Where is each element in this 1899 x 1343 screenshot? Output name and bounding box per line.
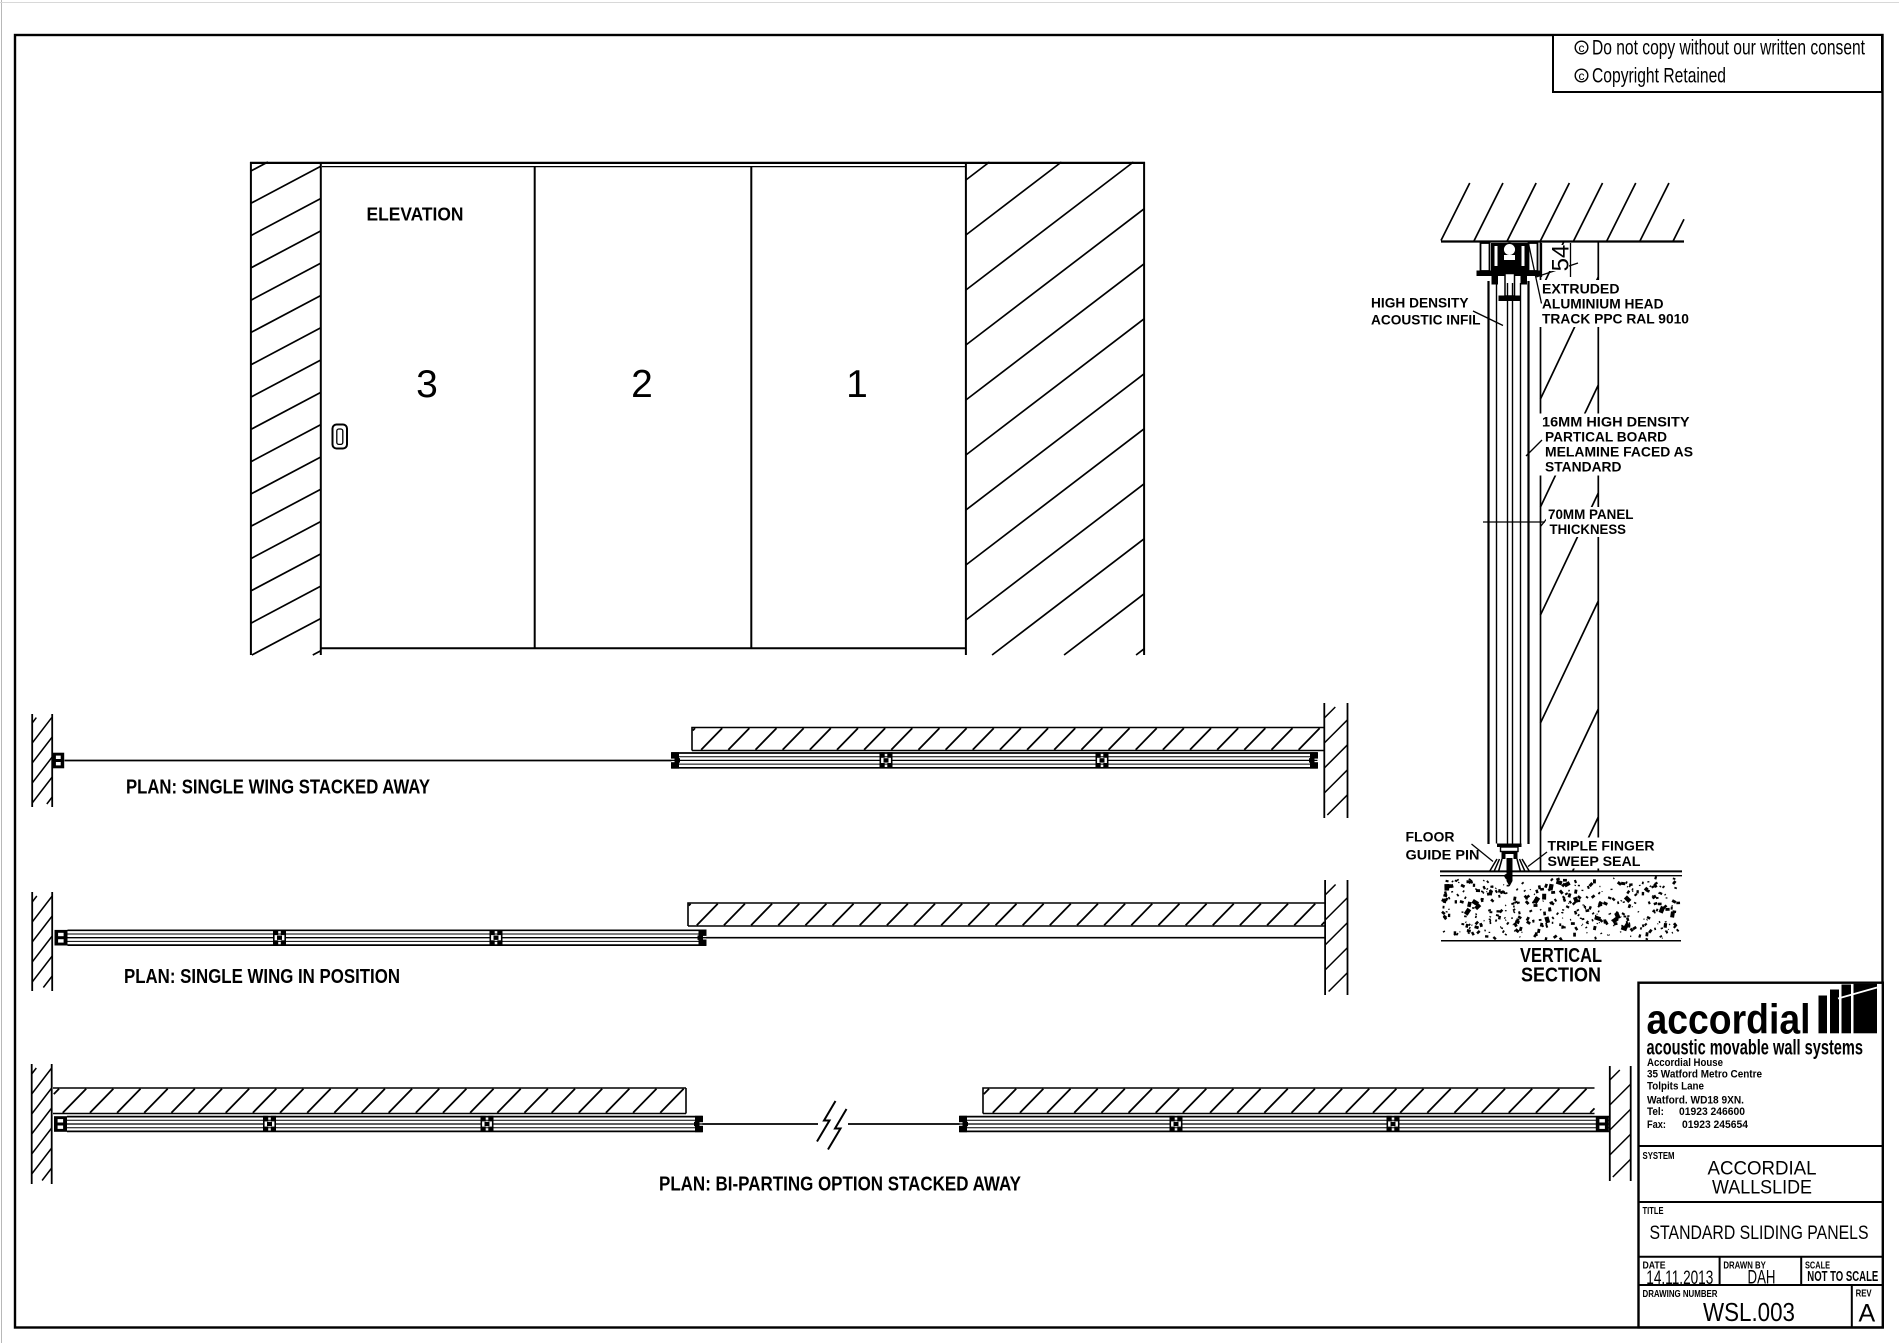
- svg-text:DAH: DAH: [1748, 1268, 1776, 1289]
- svg-text:01923 246600: 01923 246600: [1679, 1106, 1745, 1118]
- svg-text:Watford. WD18 9XN.: Watford. WD18 9XN.: [1647, 1095, 1744, 1107]
- svg-text:SWEEP SEAL: SWEEP SEAL: [1548, 853, 1641, 869]
- svg-text:ELEVATION: ELEVATION: [367, 204, 464, 225]
- svg-text:THICKNESS: THICKNESS: [1550, 521, 1627, 537]
- svg-text:PLAN: SINGLE WING IN POSITION: PLAN: SINGLE WING IN POSITION: [124, 966, 400, 988]
- svg-text:PLAN: BI-PARTING OPTION STACKE: PLAN: BI-PARTING OPTION STACKED AWAY: [659, 1174, 1022, 1196]
- svg-text:54: 54: [1548, 245, 1575, 272]
- svg-text:3: 3: [416, 363, 438, 406]
- svg-text:01923 245654: 01923 245654: [1682, 1119, 1749, 1131]
- svg-text:PARTICAL BOARD: PARTICAL BOARD: [1545, 429, 1667, 445]
- svg-text:ACOUSTIC INFIL: ACOUSTIC INFIL: [1371, 312, 1481, 328]
- svg-text:STANDARD SLIDING PANELS: STANDARD SLIDING PANELS: [1650, 1222, 1869, 1244]
- svg-text:NOT TO SCALE: NOT TO SCALE: [1807, 1269, 1878, 1285]
- svg-text:1: 1: [846, 363, 868, 406]
- svg-text:c: c: [1579, 69, 1585, 83]
- svg-text:35 Watford Metro Centre: 35 Watford Metro Centre: [1647, 1069, 1762, 1081]
- svg-text:Copyright Retained: Copyright Retained: [1592, 65, 1726, 88]
- svg-text:TRACK PPC RAL 9010: TRACK PPC RAL 9010: [1542, 311, 1689, 327]
- svg-text:A: A: [1859, 1300, 1876, 1328]
- svg-text:TITLE: TITLE: [1643, 1206, 1664, 1217]
- svg-text:WSL.003: WSL.003: [1703, 1299, 1795, 1327]
- svg-text:ALUMINIUM HEAD: ALUMINIUM HEAD: [1542, 296, 1664, 312]
- svg-text:REV: REV: [1856, 1289, 1872, 1300]
- svg-text:HIGH DENSITY: HIGH DENSITY: [1371, 295, 1469, 311]
- svg-text:MELAMINE FACED AS: MELAMINE FACED AS: [1545, 444, 1693, 460]
- svg-text:Do not copy without our writte: Do not copy without our written consent: [1592, 37, 1865, 60]
- svg-text:Tolpits Lane: Tolpits Lane: [1647, 1081, 1704, 1093]
- svg-text:16MM HIGH DENSITY: 16MM HIGH DENSITY: [1542, 414, 1690, 430]
- svg-text:Accordial House: Accordial House: [1647, 1057, 1723, 1069]
- svg-text:SECTION: SECTION: [1521, 965, 1601, 987]
- svg-text:2: 2: [631, 363, 653, 406]
- svg-text:STANDARD: STANDARD: [1545, 459, 1622, 475]
- svg-text:Fax:: Fax:: [1647, 1119, 1666, 1131]
- svg-text:70MM PANEL: 70MM PANEL: [1548, 506, 1634, 522]
- svg-text:FLOOR: FLOOR: [1406, 829, 1455, 845]
- svg-text:GUIDE PIN: GUIDE PIN: [1406, 847, 1480, 863]
- svg-text:c: c: [1579, 41, 1585, 55]
- svg-text:TRIPLE FINGER: TRIPLE FINGER: [1548, 838, 1655, 854]
- svg-text:WALLSLIDE: WALLSLIDE: [1712, 1177, 1812, 1199]
- svg-text:SYSTEM: SYSTEM: [1643, 1151, 1675, 1162]
- svg-text:14.11.2013: 14.11.2013: [1646, 1268, 1713, 1289]
- svg-text:PLAN: SINGLE WING STACKED AWAY: PLAN: SINGLE WING STACKED AWAY: [126, 777, 431, 799]
- svg-text:Tel:: Tel:: [1647, 1106, 1664, 1118]
- svg-text:accordial: accordial: [1647, 996, 1811, 1043]
- svg-text:EXTRUDED: EXTRUDED: [1542, 281, 1620, 297]
